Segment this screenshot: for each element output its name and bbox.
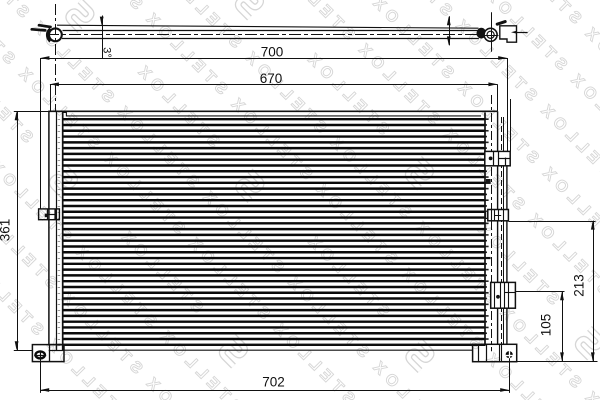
svg-text:3°: 3°: [101, 47, 113, 58]
svg-text:361: 361: [0, 219, 13, 242]
svg-text:702: 702: [262, 375, 285, 390]
svg-text:213: 213: [572, 274, 587, 297]
svg-text:700: 700: [261, 44, 284, 59]
svg-text:105: 105: [539, 314, 554, 337]
svg-text:670: 670: [260, 71, 283, 86]
